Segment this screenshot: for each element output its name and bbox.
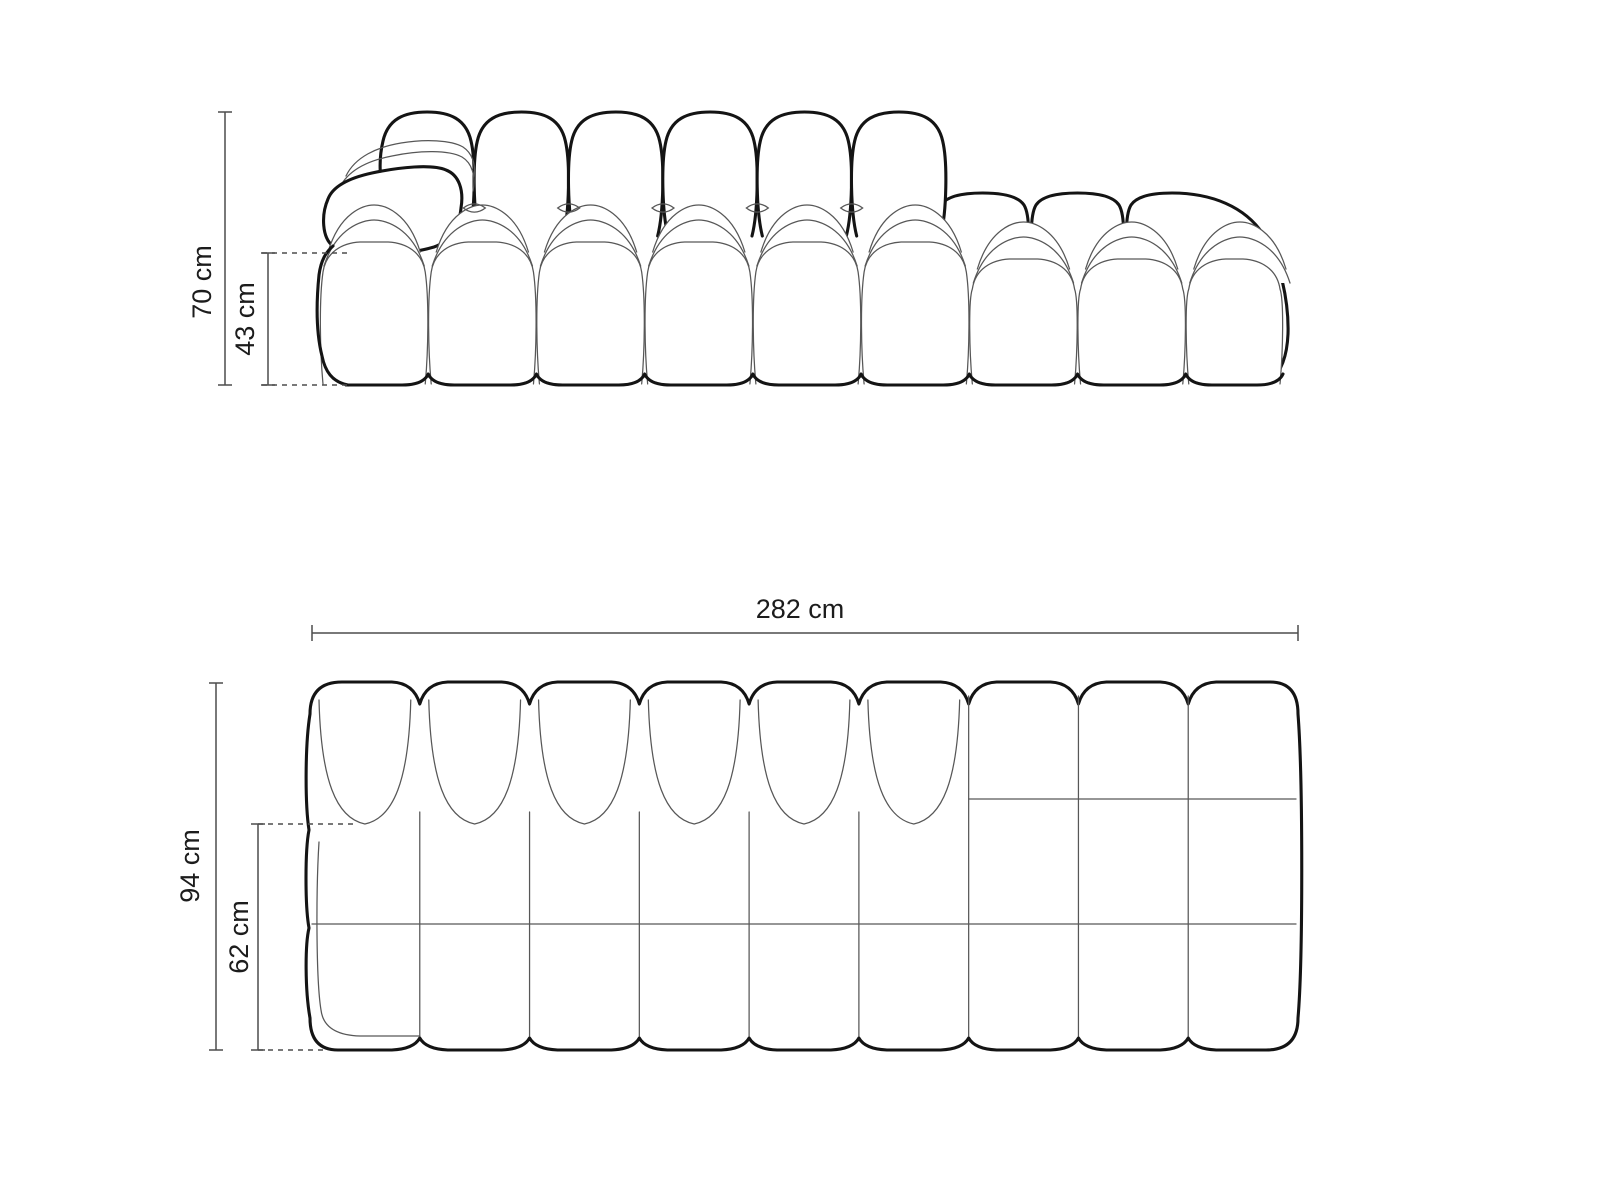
overall-depth-dimension-line	[209, 683, 223, 1050]
seat-depth-dimension-label: 62 cm	[224, 900, 254, 974]
seat-height-dimension-label: 43 cm	[230, 282, 260, 356]
plan-back-cushion	[429, 700, 521, 824]
seat-cushion	[1078, 259, 1185, 384]
front-sofa-drawing	[317, 112, 1290, 385]
seat-height-dimension-line	[261, 253, 275, 385]
seat-cushion	[537, 242, 644, 384]
overall-width-dimension-label: 282 cm	[756, 594, 845, 624]
plan-armrest-line	[317, 842, 420, 1036]
seat-cushion	[861, 242, 968, 384]
plan-outline	[306, 682, 1302, 1050]
plan-back-cushion	[648, 700, 740, 824]
seat-cushion	[753, 242, 860, 384]
plan-back-cushion	[868, 700, 960, 824]
overall-height-dimension-label: 70 cm	[187, 245, 217, 319]
front-elevation-view: 70 cm 43 cm	[187, 112, 1290, 385]
seat-cushion	[429, 242, 536, 384]
plan-back-cushion	[319, 700, 411, 824]
seat-cushion	[1186, 259, 1282, 384]
plan-sofa-drawing	[306, 682, 1302, 1050]
plan-back-cushion	[539, 700, 631, 824]
overall-width-dimension-line	[312, 625, 1298, 641]
overall-depth-dimension-label: 94 cm	[175, 829, 205, 903]
plan-top-view: 282 cm 94 cm 62 cm	[175, 594, 1302, 1050]
seat-cushion	[320, 242, 427, 384]
diagram-canvas: 70 cm 43 cm 282 cm 94 cm 62 cm	[0, 0, 1600, 1200]
seat-cushion	[970, 259, 1077, 384]
seat-cushion	[645, 242, 752, 384]
plan-back-cushion	[758, 700, 850, 824]
sofa-dimension-diagram: 70 cm 43 cm 282 cm 94 cm 62 cm	[0, 0, 1600, 1200]
